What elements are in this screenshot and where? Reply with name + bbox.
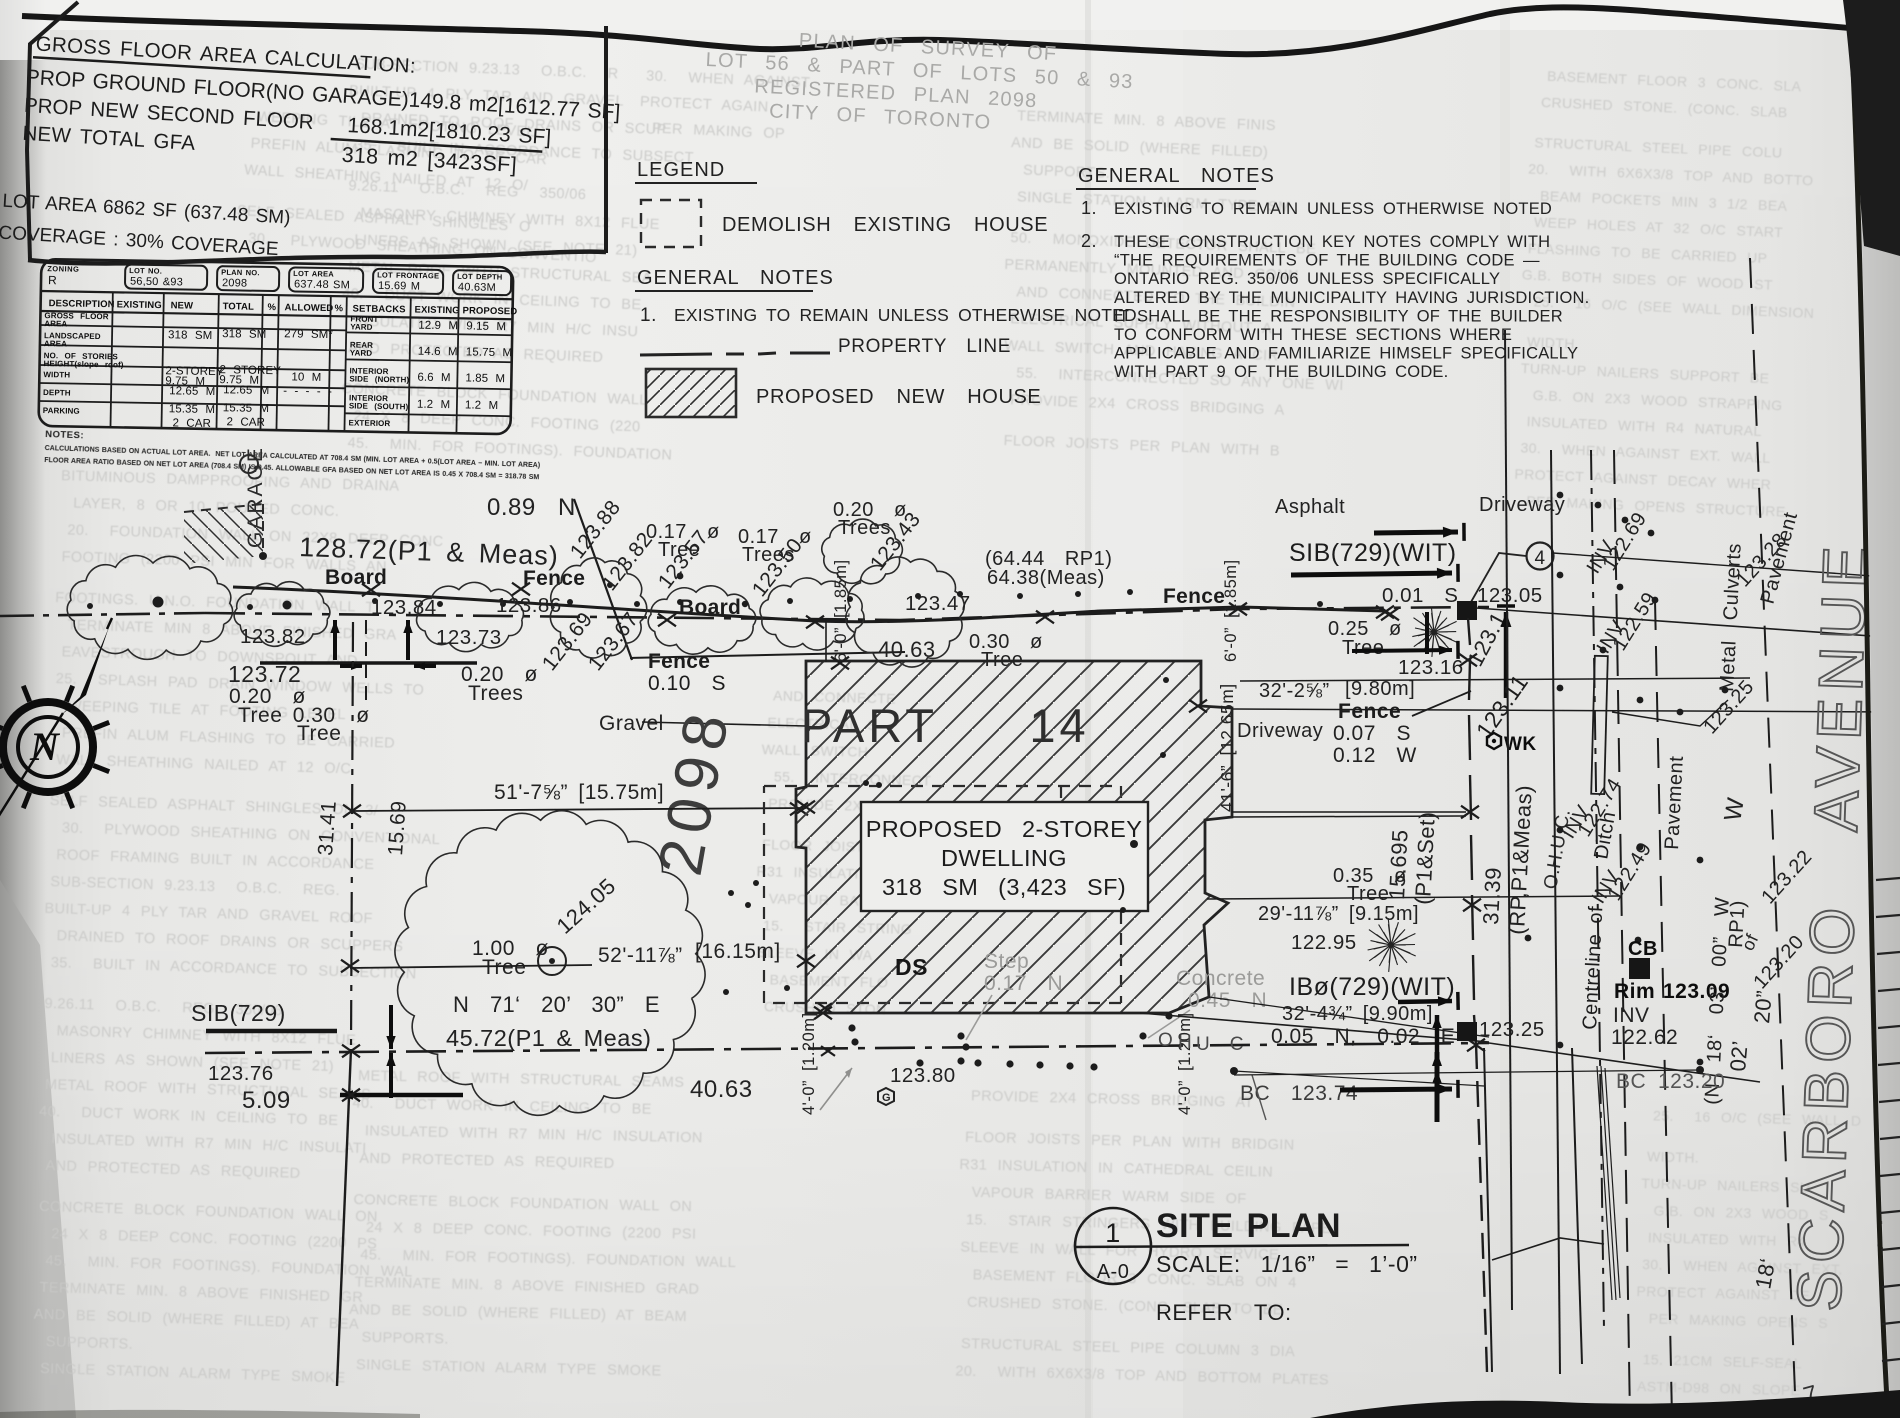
svg-text:02’: 02’ <box>1725 1040 1753 1073</box>
svg-text:SUPPORTS.: SUPPORTS. <box>361 1330 448 1348</box>
svg-text:Trees: Trees <box>742 544 795 566</box>
svg-text:123.73: 123.73 <box>436 626 502 649</box>
svg-text:123.76: 123.76 <box>208 1062 274 1085</box>
svg-text:318 SM: 318 SM <box>222 328 266 341</box>
svg-text:SIDE (NORTH): SIDE (NORTH) <box>349 374 409 384</box>
svg-text:0.45 N: 0.45 N <box>1188 989 1267 1012</box>
svg-text:SUPPORTS.: SUPPORTS. <box>46 1334 134 1353</box>
svg-text:2.: 2. <box>1081 231 1097 251</box>
svg-text:R: R <box>48 273 57 287</box>
svg-text:Tree: Tree <box>482 956 526 979</box>
svg-text:123.16: 123.16 <box>1398 656 1464 679</box>
svg-text:40.63: 40.63 <box>690 1076 753 1103</box>
svg-text:CB: CB <box>1628 938 1658 960</box>
svg-text:ONTARIO REG. 350/06 UNLESS SPE: ONTARIO REG. 350/06 UNLESS SPECIFICALLY <box>1114 270 1500 288</box>
svg-text:W: W <box>1719 796 1750 823</box>
svg-text:12.9 M: 12.9 M <box>418 320 458 333</box>
svg-text:APPLICABLE AND FAMILIARIZE HIM: APPLICABLE AND FAMILIARIZE HIMSELF SPECI… <box>1114 345 1578 363</box>
svg-text:15.695: 15.695 <box>1384 829 1413 901</box>
svg-text:SCALE: 1/16” = 1’-0”: SCALE: 1/16” = 1’-0” <box>1156 1251 1418 1277</box>
svg-text:123.47: 123.47 <box>905 592 971 615</box>
svg-text:GENERAL NOTES: GENERAL NOTES <box>1078 165 1275 187</box>
svg-text:G: G <box>882 1092 891 1104</box>
svg-text:[9.80m]: [9.80m] <box>1345 678 1415 700</box>
svg-text:NOTES:: NOTES: <box>45 429 84 441</box>
svg-text:0.01 S: 0.01 S <box>1382 584 1458 607</box>
svg-text:DESCRIPTION: DESCRIPTION <box>49 298 115 310</box>
svg-text:Trees: Trees <box>468 682 523 705</box>
svg-text:O: O <box>1158 1030 1173 1051</box>
svg-text:123.80: 123.80 <box>890 1064 956 1087</box>
svg-text:BC: BC <box>1616 1070 1646 1093</box>
svg-text:Tree: Tree <box>1347 883 1389 905</box>
svg-text:41'-6” [12.65m]: 41'-6” [12.65m] <box>1217 683 1237 812</box>
svg-text:122.62: 122.62 <box>1611 1026 1678 1049</box>
svg-text:ALLOWED: ALLOWED <box>285 302 334 314</box>
svg-text:15.69: 15.69 <box>384 800 411 857</box>
svg-text:4'-0” [1.20m]: 4'-0” [1.20m] <box>1176 1012 1194 1115</box>
svg-text:6.6 M: 6.6 M <box>417 372 450 385</box>
svg-text:12.65 M: 12.65 M <box>223 384 269 397</box>
svg-text:EXISTING TO REMAIN UNLESS OTHE: EXISTING TO REMAIN UNLESS OTHERWISE NOTE… <box>674 305 1142 325</box>
svg-text:318 SM (3,423 SF): 318 SM (3,423 SF) <box>882 874 1126 900</box>
svg-text:EXISTING TO REMAIN UNLESS OTHE: EXISTING TO REMAIN UNLESS OTHERWISE NOTE… <box>1114 200 1552 218</box>
svg-text:A-0: A-0 <box>1097 1261 1130 1283</box>
svg-text:4: 4 <box>1534 548 1545 569</box>
svg-text:GARAGE: GARAGE <box>244 446 267 548</box>
svg-text:NEW: NEW <box>171 300 194 311</box>
svg-text:PROPOSED NEW HOUSE: PROPOSED NEW HOUSE <box>756 386 1041 408</box>
svg-text:Step: Step <box>984 950 1029 973</box>
svg-text:IBø(729)(WIT): IBø(729)(WIT) <box>1289 973 1455 1001</box>
svg-text:2098: 2098 <box>222 277 247 289</box>
svg-text:INV: INV <box>1613 1004 1650 1027</box>
svg-text:123.84: 123.84 <box>371 596 437 619</box>
svg-text:EXISTING: EXISTING <box>414 305 459 317</box>
svg-text:HEIGHT(slope roof): HEIGHT(slope roof) <box>44 359 124 369</box>
svg-text:32'-4¾” [9.90m]: 32'-4¾” [9.90m] <box>1282 1003 1433 1025</box>
svg-text:122.95: 122.95 <box>1291 931 1357 954</box>
svg-text:Trees: Trees <box>838 517 891 539</box>
svg-text:EXISTING: EXISTING <box>117 299 162 311</box>
svg-text:DEMOLISH EXISTING HOUSE: DEMOLISH EXISTING HOUSE <box>722 214 1048 236</box>
svg-text:1.2 M: 1.2 M <box>417 399 450 412</box>
svg-text:123.86: 123.86 <box>496 594 562 617</box>
svg-text:12.65 M: 12.65 M <box>169 385 215 398</box>
svg-text:PLAN NO.: PLAN NO. <box>221 268 260 278</box>
svg-text:20”: 20” <box>1749 989 1777 1024</box>
svg-text:Asphalt: Asphalt <box>1275 496 1345 518</box>
svg-text:1.2 M: 1.2 M <box>465 399 498 412</box>
svg-text:Fence: Fence <box>1163 585 1225 608</box>
svg-text:PARKING: PARKING <box>43 406 80 416</box>
svg-text:LOT NO.: LOT NO. <box>129 266 162 276</box>
svg-text:Gravel: Gravel <box>599 712 664 735</box>
svg-text:279 SM*: 279 SM* <box>284 328 333 341</box>
svg-text:WIDTH.: WIDTH. <box>1647 1148 1700 1165</box>
svg-text:AREA: AREA <box>44 339 67 348</box>
svg-text:YARD: YARD <box>350 348 373 357</box>
svg-text:DEPTH: DEPTH <box>43 388 71 397</box>
svg-text:LEGEND: LEGEND <box>637 159 725 181</box>
svg-text:5.09: 5.09 <box>242 1087 291 1114</box>
svg-text:%: % <box>268 302 277 313</box>
svg-text:31.39: 31.39 <box>1478 866 1506 925</box>
svg-text:52'-11⅞”: 52'-11⅞” <box>598 944 683 967</box>
svg-text:123.25: 123.25 <box>1479 1018 1545 1041</box>
svg-text:123.82: 123.82 <box>240 625 306 648</box>
svg-text:6'-0” [1.85m]: 6'-0” [1.85m] <box>1222 559 1240 662</box>
svg-text:WITH PART 9 OF THE BUILDING CO: WITH PART 9 OF THE BUILDING CODE. <box>1114 363 1448 381</box>
svg-text:0.05 N, 0.02 E: 0.05 N, 0.02 E <box>1271 1025 1455 1048</box>
svg-text:9.15 M: 9.15 M <box>466 320 506 333</box>
svg-text:40.63M: 40.63M <box>458 281 496 294</box>
svg-text:0.17 N: 0.17 N <box>984 972 1063 995</box>
svg-text:%: % <box>334 303 343 314</box>
svg-text:2 CAR: 2 CAR <box>172 417 211 430</box>
svg-text:PROPOSED 2-STOREY: PROPOSED 2-STOREY <box>866 816 1143 842</box>
svg-text:LOT DEPTH: LOT DEPTH <box>457 272 502 282</box>
svg-text:PART 14: PART 14 <box>801 699 1090 752</box>
svg-text:RP1): RP1) <box>1725 900 1749 949</box>
svg-text:123.72: 123.72 <box>228 661 301 687</box>
svg-text:PROPERTY LINE: PROPERTY LINE <box>838 336 1011 357</box>
svg-text:[16.15m]: [16.15m] <box>695 940 781 963</box>
svg-text:1.85 M: 1.85 M <box>465 372 505 385</box>
svg-text:1: 1 <box>1105 1218 1121 1248</box>
svg-text:(P1&Set): (P1&Set) <box>1410 811 1440 905</box>
svg-text:SETBACKS: SETBACKS <box>352 303 405 315</box>
svg-text:18‘: 18‘ <box>1750 1256 1780 1291</box>
svg-text:LOT FRONTAGE: LOT FRONTAGE <box>377 270 439 280</box>
svg-text:31.41: 31.41 <box>314 800 341 857</box>
svg-text:45.72(P1 & Meas): 45.72(P1 & Meas) <box>446 1025 651 1051</box>
svg-text:ALTERED BY THE MUNICIPALITY HA: ALTERED BY THE MUNICIPALITY HAVING JURIS… <box>1114 289 1589 307</box>
svg-text:2 CAR: 2 CAR <box>226 416 265 429</box>
svg-text:Concrete: Concrete <box>1176 967 1265 990</box>
svg-text:51'-7⅝” [15.75m]: 51'-7⅝” [15.75m] <box>494 781 664 804</box>
svg-text:10 M: 10 M <box>291 371 321 384</box>
svg-text:40.63: 40.63 <box>878 637 936 662</box>
svg-text:4'-0” [1.20m]: 4'-0” [1.20m] <box>800 1012 818 1115</box>
svg-text:N: N <box>29 724 61 769</box>
svg-text:Tree: Tree <box>297 722 341 745</box>
svg-text:TO CONFORM WITH THESE SECTIONS: TO CONFORM WITH THESE SECTIONS WHERE <box>1114 326 1512 344</box>
svg-text:0.89 N: 0.89 N <box>487 494 576 521</box>
svg-text:SITE PLAN: SITE PLAN <box>1156 1207 1341 1245</box>
svg-text:“THE REQUIREMENTS OF THE BUILD: “THE REQUIREMENTS OF THE BUILDING CODE — <box>1114 252 1540 270</box>
svg-text:15.35 M: 15.35 M <box>223 402 269 415</box>
svg-text:637.48 SM: 637.48 SM <box>294 278 350 291</box>
svg-text:Driveway: Driveway <box>1237 720 1323 742</box>
svg-text:Tree: Tree <box>658 539 700 561</box>
svg-text:YARD: YARD <box>350 322 373 331</box>
svg-text:SIB(729): SIB(729) <box>191 1000 286 1026</box>
svg-text:GENERAL NOTES: GENERAL NOTES <box>637 267 834 289</box>
svg-text:THESE CONSTRUCTION KEY NOTES C: THESE CONSTRUCTION KEY NOTES COMPLY WITH <box>1114 233 1550 251</box>
svg-text:1.: 1. <box>640 305 657 326</box>
svg-text:123.05: 123.05 <box>1477 584 1543 607</box>
svg-text:0.07 S: 0.07 S <box>1333 722 1411 745</box>
svg-text:6'-0” [1.85m]: 6'-0” [1.85m] <box>832 559 850 662</box>
svg-text:DWELLING: DWELLING <box>941 845 1067 871</box>
svg-text:WIDTH: WIDTH <box>43 370 70 379</box>
svg-text:Fence: Fence <box>1338 700 1401 723</box>
svg-text:IT SHALL BE THE RESPONSIBILITY: IT SHALL BE THE RESPONSIBILITY OF THE BU… <box>1114 307 1563 325</box>
svg-text:Board: Board <box>325 566 387 589</box>
svg-text:123.20: 123.20 <box>1658 1070 1725 1093</box>
svg-text:SIDE (SOUTH): SIDE (SOUTH) <box>349 401 409 411</box>
svg-text:64.38(Meas): 64.38(Meas) <box>987 567 1105 589</box>
svg-text:Tree: Tree <box>1342 637 1384 659</box>
svg-text:REFER TO:: REFER TO: <box>1156 1300 1292 1325</box>
svg-text:0.10 S: 0.10 S <box>648 672 726 695</box>
svg-text:15.35 M: 15.35 M <box>169 403 215 416</box>
svg-text:N 71‘ 20’ 30” E: N 71‘ 20’ 30” E <box>453 992 660 1017</box>
svg-text:PROPOSED: PROPOSED <box>462 305 517 317</box>
svg-text:Rim: Rim <box>1614 980 1655 1003</box>
svg-text:15.69 M: 15.69 M <box>378 280 420 293</box>
svg-text:EXTERIOR: EXTERIOR <box>349 418 391 428</box>
svg-text:U C: U C <box>1196 1034 1244 1055</box>
svg-text:LOT AREA: LOT AREA <box>293 269 334 279</box>
svg-text:29'-11⅞” [9.15m]: 29'-11⅞” [9.15m] <box>1258 903 1419 925</box>
svg-text:15.75 M: 15.75 M <box>466 346 512 359</box>
svg-text:TOTAL: TOTAL <box>223 301 255 313</box>
svg-text:14.6 M: 14.6 M <box>418 346 458 359</box>
svg-text:56,50 &93: 56,50 &93 <box>130 276 183 289</box>
svg-text:318 SM: 318 SM <box>168 329 212 342</box>
svg-text:32'-2⅝”: 32'-2⅝” <box>1259 680 1330 702</box>
svg-text:- - - - -: - - - - - <box>283 385 332 398</box>
svg-text:SIB(729)(WIT): SIB(729)(WIT) <box>1289 539 1457 567</box>
svg-text:H: H <box>1178 1032 1192 1053</box>
svg-text:Board: Board <box>679 596 741 619</box>
svg-text:AREA: AREA <box>44 319 67 328</box>
svg-text:DS: DS <box>895 954 928 980</box>
svg-text:1.: 1. <box>1081 198 1097 218</box>
svg-text:0.12 W: 0.12 W <box>1333 744 1417 767</box>
